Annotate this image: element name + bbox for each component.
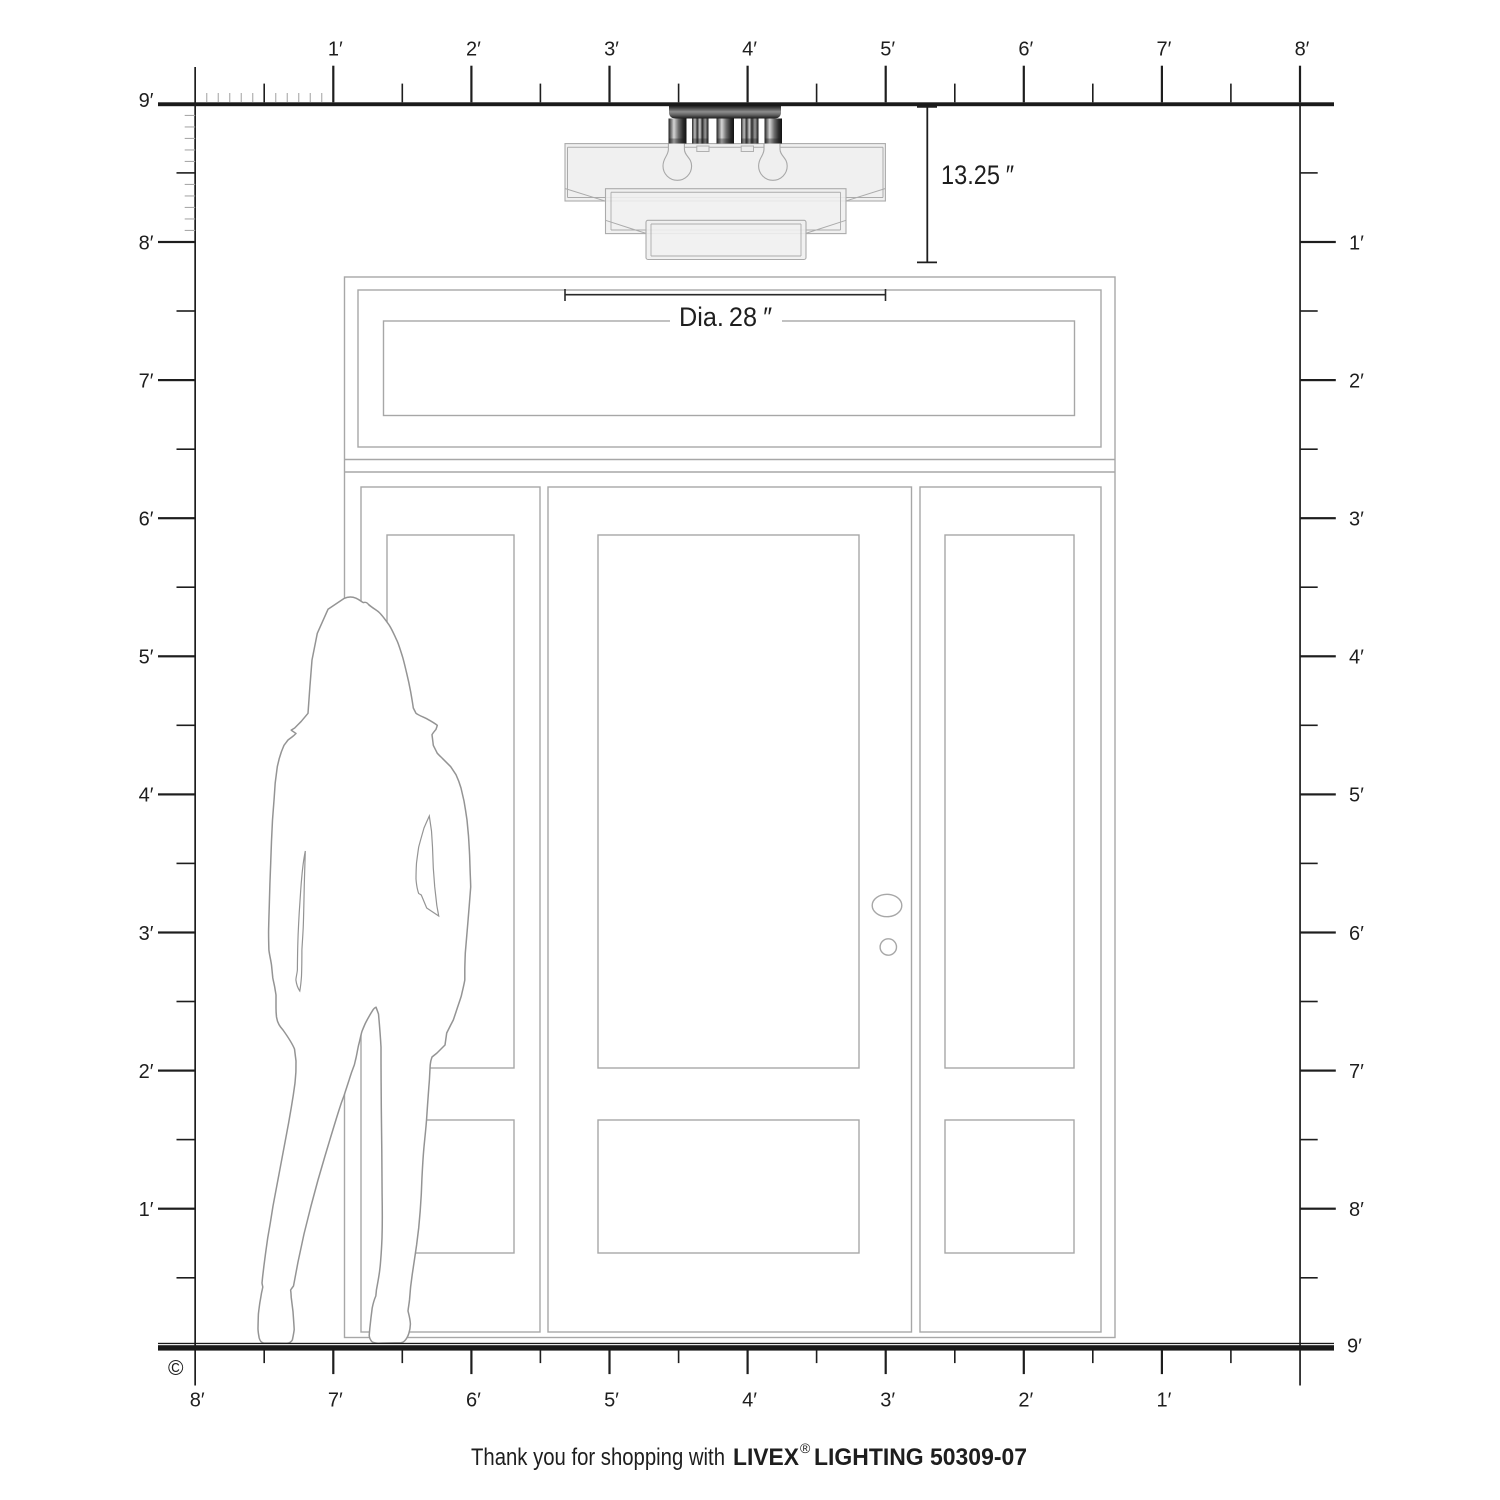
- svg-text:7′: 7′: [1349, 1061, 1364, 1083]
- svg-text:4′: 4′: [742, 39, 757, 61]
- svg-text:4′: 4′: [1349, 647, 1364, 669]
- svg-text:5′: 5′: [1349, 785, 1364, 807]
- svg-text:9′: 9′: [139, 90, 154, 112]
- svg-text:13.25 ″: 13.25 ″: [941, 160, 1014, 190]
- svg-text:7′: 7′: [328, 1390, 343, 1412]
- svg-text:4′: 4′: [742, 1390, 757, 1412]
- svg-text:3′: 3′: [604, 39, 619, 61]
- svg-text:®: ®: [800, 1440, 811, 1456]
- svg-text:8′: 8′: [1349, 1199, 1364, 1221]
- svg-text:1′: 1′: [328, 39, 343, 61]
- svg-text:7′: 7′: [139, 370, 154, 392]
- svg-text:8′: 8′: [1295, 39, 1310, 61]
- svg-text:8′: 8′: [139, 232, 154, 254]
- svg-text:1′: 1′: [1349, 232, 1364, 254]
- svg-text:4′: 4′: [139, 785, 154, 807]
- svg-text:1′: 1′: [1156, 1390, 1171, 1412]
- svg-text:2′: 2′: [139, 1061, 154, 1083]
- svg-text:5′: 5′: [880, 39, 895, 61]
- svg-text:5′: 5′: [604, 1390, 619, 1412]
- svg-text:2′: 2′: [1018, 1390, 1033, 1412]
- svg-text:2′: 2′: [1349, 370, 1364, 392]
- svg-text:Thank you for shopping with: Thank you for shopping with: [471, 1444, 725, 1471]
- svg-text:6′: 6′: [139, 509, 154, 531]
- svg-text:6′: 6′: [1018, 39, 1033, 61]
- svg-text:3′: 3′: [880, 1390, 895, 1412]
- svg-text:LIVEX: LIVEX: [733, 1444, 799, 1471]
- svg-text:3′: 3′: [1349, 509, 1364, 531]
- svg-text:6′: 6′: [466, 1390, 481, 1412]
- svg-text:©: ©: [168, 1357, 184, 1380]
- svg-text:2′: 2′: [466, 39, 481, 61]
- svg-text:Dia. 28 ″: Dia. 28 ″: [679, 302, 772, 332]
- svg-text:5′: 5′: [139, 647, 154, 669]
- svg-text:7′: 7′: [1156, 39, 1171, 61]
- svg-text:6′: 6′: [1349, 923, 1364, 945]
- svg-text:9′: 9′: [1347, 1336, 1362, 1358]
- svg-text:1′: 1′: [139, 1199, 154, 1221]
- svg-text:LIGHTING 50309-07: LIGHTING 50309-07: [814, 1444, 1027, 1471]
- svg-text:8′: 8′: [190, 1390, 205, 1412]
- svg-text:3′: 3′: [139, 923, 154, 945]
